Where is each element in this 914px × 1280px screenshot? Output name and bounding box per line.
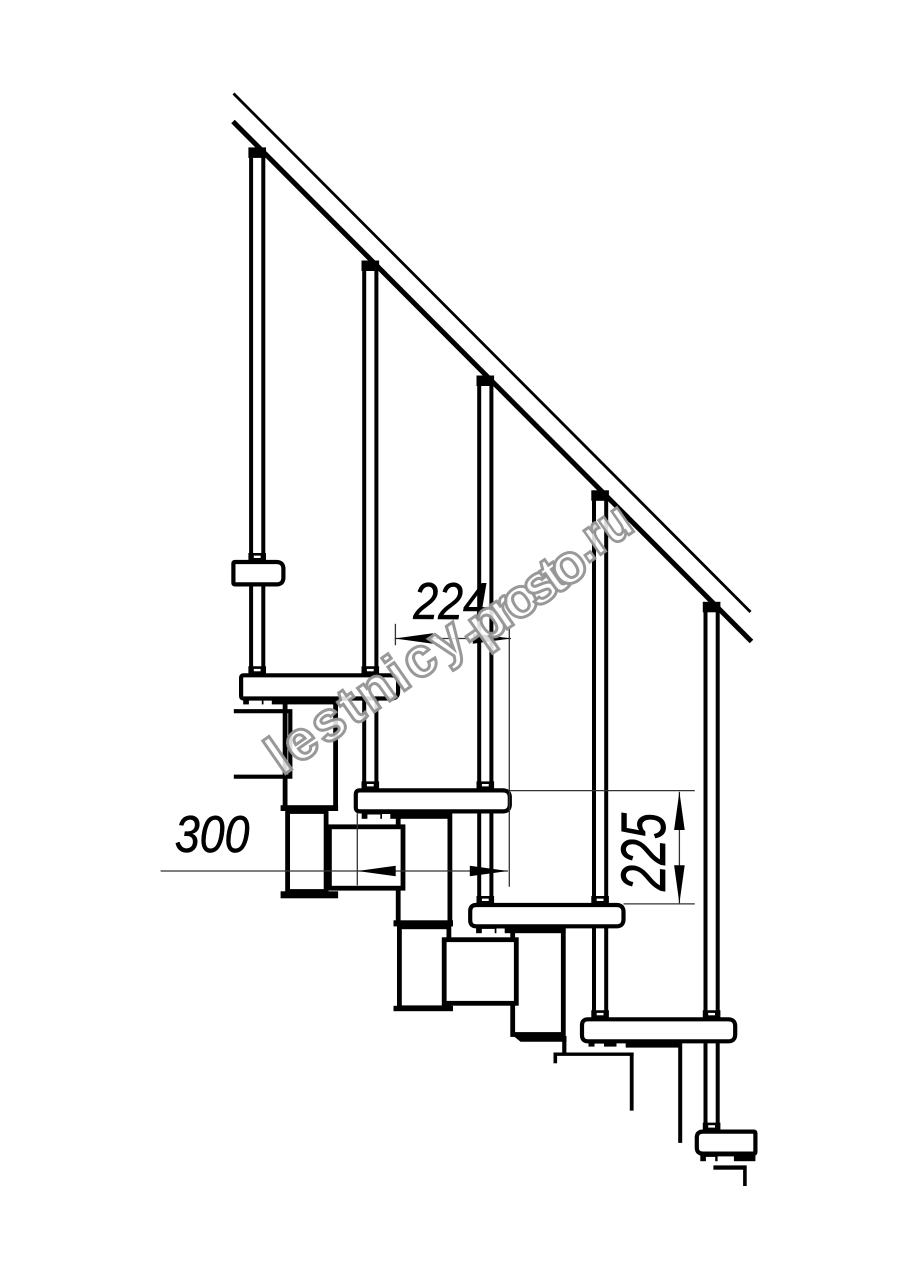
svg-text:225: 225 <box>609 812 679 892</box>
svg-text:300: 300 <box>175 806 250 864</box>
